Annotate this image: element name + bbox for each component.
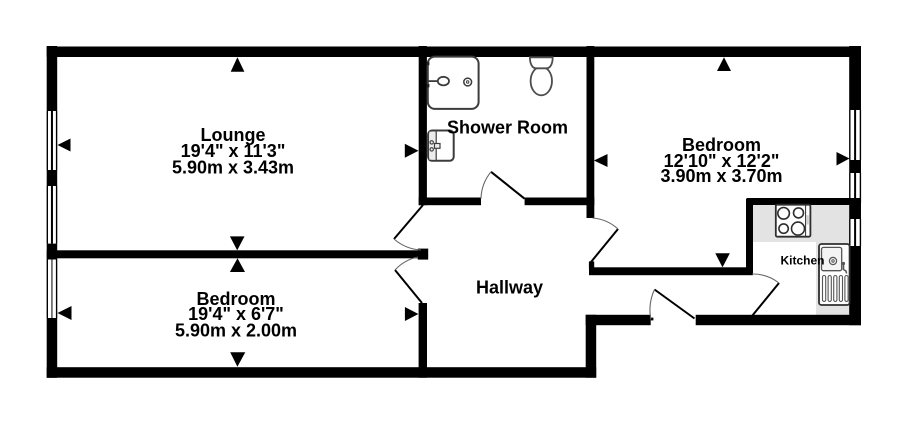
svg-text:Hallway: Hallway [476, 278, 543, 298]
svg-text:Shower Room: Shower Room [447, 118, 568, 138]
svg-text:Kitchen: Kitchen [780, 254, 824, 268]
svg-text:5.90m x 3.43m: 5.90m x 3.43m [172, 158, 294, 178]
svg-text:5.90m x 2.00m: 5.90m x 2.00m [175, 321, 297, 341]
svg-text:3.90m x 3.70m: 3.90m x 3.70m [660, 166, 782, 186]
